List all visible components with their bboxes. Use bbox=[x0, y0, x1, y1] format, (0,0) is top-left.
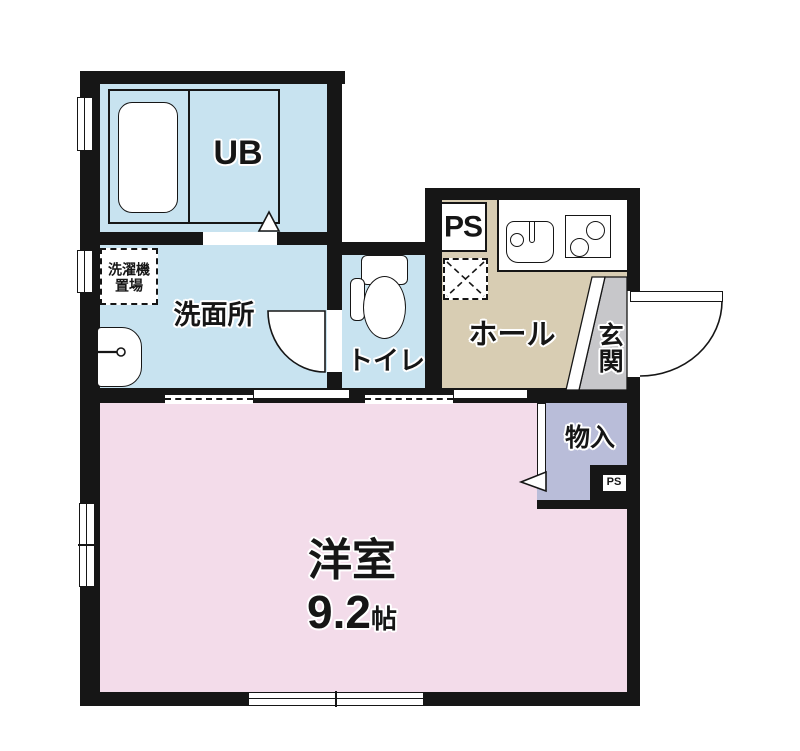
wall-right bbox=[627, 188, 640, 706]
washroom-label: 洗面所 bbox=[174, 301, 255, 329]
toilet-bowl-icon bbox=[363, 276, 406, 339]
laundry-space-label-line1: 洗濯機 bbox=[108, 263, 150, 278]
hall-label: ホール bbox=[468, 320, 555, 350]
floor-plan: UB 洗濯機 置場 洗面所 トイレ PS ホール 玄関 物入 PS 洋室 9.2… bbox=[0, 0, 800, 751]
toilet-label: トイレ bbox=[347, 347, 425, 374]
window-western-left-tick bbox=[78, 544, 96, 546]
wall-top-left bbox=[80, 71, 345, 84]
entrance-door-leaf bbox=[630, 291, 723, 302]
sink-faucet-icon bbox=[529, 221, 535, 243]
floor-hatch-icon bbox=[443, 258, 488, 300]
bathtub-icon bbox=[118, 102, 178, 213]
window-unit-bath bbox=[77, 97, 93, 151]
western-room-size-unit: 帖 bbox=[371, 604, 397, 634]
washroom-sliding-door-panel bbox=[253, 389, 350, 399]
toilet-door-opening bbox=[327, 310, 342, 372]
entrance-door-opening bbox=[627, 291, 640, 377]
ub-door-opening bbox=[203, 232, 277, 245]
entrance-label: 玄関 bbox=[596, 322, 622, 374]
sink-drain-icon bbox=[510, 233, 524, 247]
stove-burner-icon bbox=[570, 238, 589, 257]
storage-door-panel bbox=[537, 403, 546, 481]
stove-burner-icon bbox=[586, 221, 605, 240]
western-room-size-value: 9.2 bbox=[307, 586, 371, 638]
window-unit-bath-mullion bbox=[84, 98, 85, 150]
window-western-bottom-tick bbox=[335, 691, 337, 707]
window-washroom bbox=[77, 250, 93, 293]
pipe-space-label: PS bbox=[444, 211, 482, 243]
wall-room-top bbox=[80, 388, 640, 403]
storage-label: 物入 bbox=[565, 425, 615, 451]
pipe-space-small-label: PS bbox=[607, 477, 622, 489]
wall-storage-bottom bbox=[537, 500, 627, 509]
wall-kitchen-top bbox=[425, 188, 640, 200]
unit-bath-label: UB bbox=[213, 136, 262, 172]
entrance-door-swing-arc bbox=[640, 301, 722, 376]
western-room-size: 9.2帖 bbox=[307, 588, 397, 636]
hall-sliding-door-panel bbox=[453, 389, 528, 399]
western-room-label: 洋室 bbox=[308, 538, 396, 584]
laundry-space-label-line2: 置場 bbox=[115, 279, 143, 294]
window-washroom-mullion bbox=[84, 251, 85, 292]
hall-sliding-door-track bbox=[365, 398, 453, 400]
bath-partition bbox=[188, 89, 190, 224]
washroom-sliding-door-track bbox=[165, 398, 253, 400]
washbasin-icon bbox=[97, 327, 142, 387]
